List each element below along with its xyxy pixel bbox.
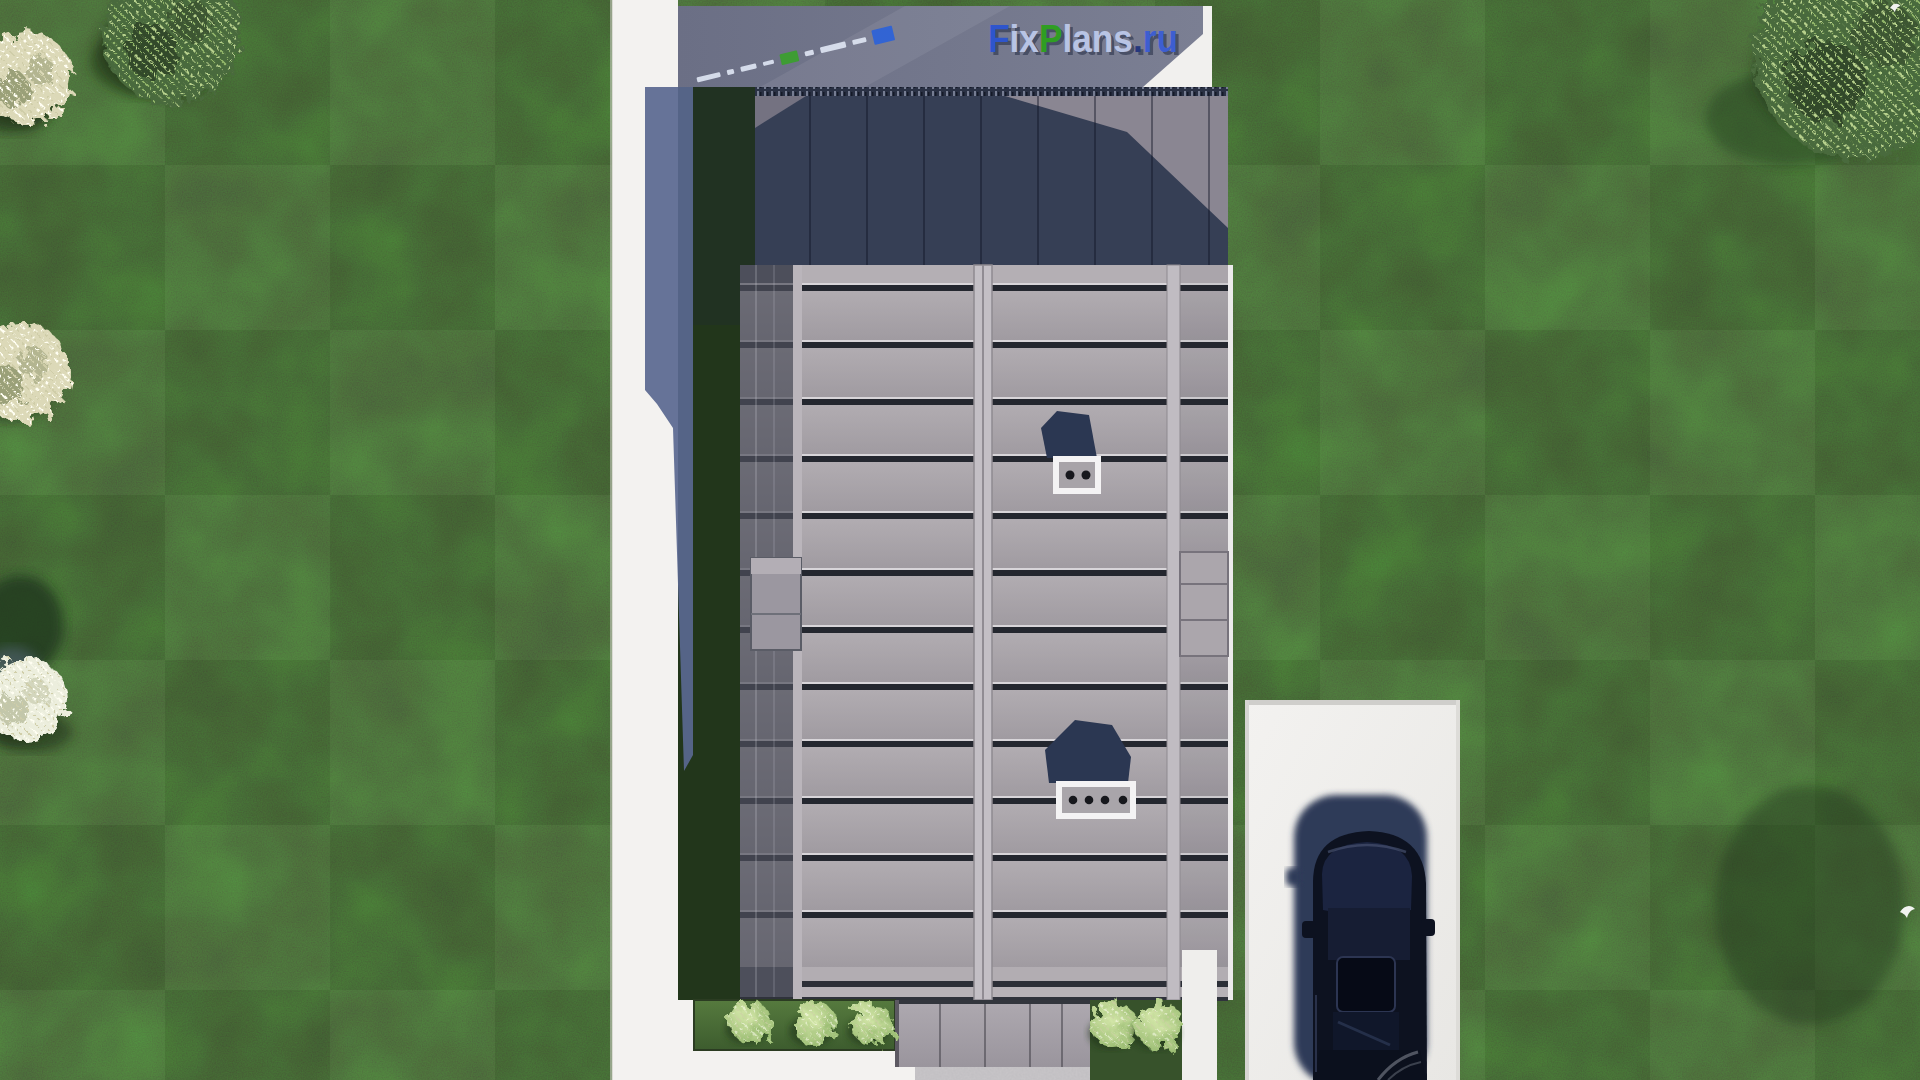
porch-steps [915,1067,1090,1080]
roof-ridge [755,87,1228,96]
roof-vent-box-right [1180,552,1228,656]
vent-outlet [1101,796,1110,805]
vent-outlet [1119,796,1128,805]
grass-dark-patch [1715,785,1905,1025]
vent-outlet [1085,796,1094,805]
house-upper-roof [755,87,1228,265]
vent-outlet [1082,471,1091,480]
driveway-edge [1245,700,1460,705]
roof-bottom-band [793,967,1228,981]
vent-outlet [1066,471,1075,480]
roof-panels [793,283,1228,967]
car-mirror-right [1421,919,1435,936]
car-roof [1328,908,1410,960]
house-main-roof [740,265,1233,1001]
car [1286,795,1435,1080]
vent-outlet [1069,796,1078,805]
car-mirror-shadow [1286,868,1303,886]
scene-canvas: FixPlans.ru FixPlans.ru [0,0,1920,1080]
roof-ridge-band-right [1167,265,1180,1000]
car-sunroof [1337,957,1395,1012]
terrace-white-band [1203,6,1212,87]
car-rear-window [1322,842,1412,915]
roof-top-band [793,265,1228,283]
aerial-render: FixPlans.ru FixPlans.ru [0,0,1920,1080]
side-path-strip [1182,950,1217,1080]
car-mirror-left [1302,921,1316,938]
watermark-text: FixPlans.ru [988,18,1178,60]
porch-canopy [895,1000,1090,1080]
fixplans-watermark: FixPlans.ru FixPlans.ru [988,18,1181,63]
roof-vent-box-left [751,558,801,650]
path-edge [610,0,613,1080]
